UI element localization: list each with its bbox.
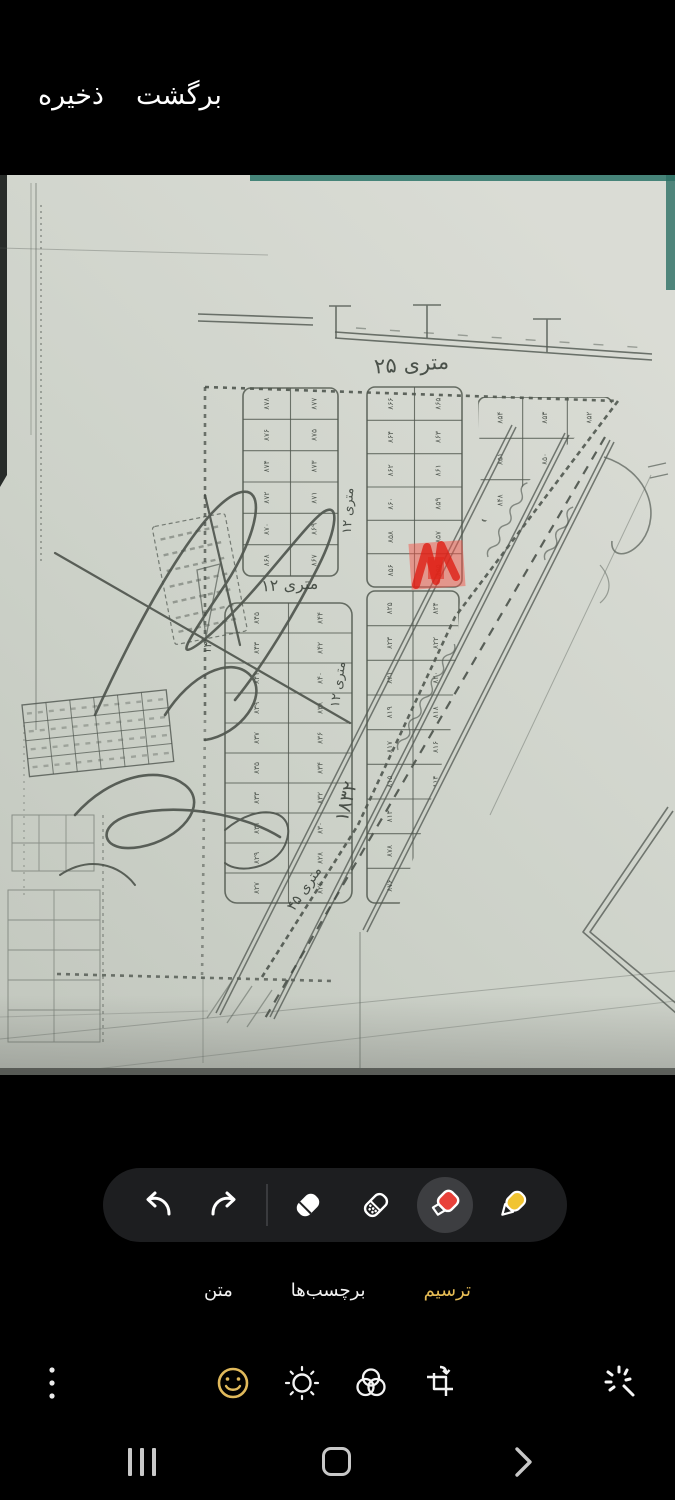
svg-text:۸۲۷: ۸۲۷ [252, 882, 261, 894]
svg-text:۸۳۶: ۸۳۶ [315, 732, 324, 744]
svg-text:۸۱۶: ۸۱۶ [431, 741, 440, 753]
undo-button[interactable] [129, 1177, 185, 1233]
mode-tabs: ترسیم برچسب‌ها متن [0, 1278, 675, 1303]
map-image: ۸۷۸۸۷۷۸۷۶۸۷۵۸۷۴۸۷۳۸۷۲۸۷۱۸۷۰۸۶۹۸۶۸۸۶۷۸۶۶۸… [0, 175, 675, 1075]
svg-text:۸۵۱: ۸۵۱ [495, 453, 504, 465]
svg-text:۸۶۸: ۸۶۸ [262, 554, 271, 566]
filters-button[interactable] [348, 1360, 394, 1406]
svg-text:۸۶۳: ۸۶۳ [433, 431, 442, 443]
svg-text:۸۷۶: ۸۷۶ [262, 429, 271, 441]
svg-text:۸۳۹: ۸۳۹ [252, 702, 261, 714]
svg-text:۸۷۶: ۸۷۶ [385, 880, 394, 892]
drawing-toolbar [103, 1168, 567, 1242]
svg-text:۸۶۷: ۸۶۷ [309, 554, 318, 566]
svg-text:۸۵۹: ۸۵۹ [433, 498, 442, 510]
svg-text:۸۴۸: ۸۴۸ [495, 494, 504, 506]
svg-text:۸۷۱: ۸۷۱ [309, 492, 318, 504]
svg-text:۸۲۱: ۸۲۱ [385, 672, 394, 684]
svg-text:۸۳۳: ۸۳۳ [252, 792, 261, 804]
svg-text:۸۱۹: ۸۱۹ [385, 706, 394, 718]
more-menu-icon [48, 1366, 56, 1400]
filters-icon [353, 1365, 389, 1401]
tab-text[interactable]: متن [200, 1278, 237, 1303]
svg-text:۸۱۸: ۸۱۸ [431, 706, 440, 718]
paper-background [0, 175, 675, 1075]
svg-text:۸۲۰: ۸۲۰ [431, 672, 440, 684]
svg-text:۸۱۳: ۸۱۳ [385, 810, 394, 822]
eraser-button[interactable] [280, 1177, 336, 1233]
svg-text:۸۲۲: ۸۲۲ [431, 637, 440, 649]
svg-text:۸۶۴: ۸۶۴ [386, 431, 395, 443]
back-chevron-icon [514, 1446, 534, 1478]
home-button[interactable] [322, 1447, 351, 1476]
svg-text:۸۶۹: ۸۶۹ [309, 523, 318, 535]
red-highlight-annotation [408, 540, 465, 590]
svg-text:۸۳۷: ۸۳۷ [252, 732, 261, 744]
svg-text:۱۴: ۱۴ [201, 641, 215, 654]
svg-text:۸۶۵: ۸۶۵ [433, 398, 442, 410]
svg-text:۸۱۷: ۸۱۷ [385, 741, 394, 753]
back-button[interactable]: برگشت [136, 80, 222, 111]
svg-text:۸۷۵: ۸۷۵ [309, 429, 318, 441]
svg-text:۸۷۷: ۸۷۷ [309, 398, 318, 410]
svg-text:۸۲۸: ۸۲۸ [315, 852, 324, 864]
redo-icon [208, 1190, 242, 1220]
svg-text:۸۵۶: ۸۵۶ [386, 564, 395, 576]
svg-text:۸۳۴: ۸۳۴ [315, 762, 324, 774]
save-button[interactable]: ذخیره [38, 80, 104, 111]
pattern-eraser-button[interactable] [348, 1177, 404, 1233]
svg-text:۸۷۸: ۸۷۸ [262, 398, 271, 410]
spot-fix-icon [602, 1363, 642, 1403]
emoji-icon [215, 1365, 251, 1401]
recents-icon [128, 1448, 132, 1476]
transform-button[interactable] [417, 1360, 463, 1406]
svg-text:۸۲۳: ۸۲۳ [385, 637, 394, 649]
pen-button[interactable] [485, 1177, 541, 1233]
svg-text:۸۳۵: ۸۳۵ [252, 762, 261, 774]
tab-draw[interactable]: ترسیم [420, 1278, 475, 1303]
svg-text:۸۷۳: ۸۷۳ [309, 460, 318, 472]
back-nav-button[interactable] [514, 1446, 534, 1481]
svg-text:۸۵۸: ۸۵۸ [386, 531, 395, 543]
toolbar-divider [266, 1184, 268, 1226]
svg-text:۸۴۰: ۸۴۰ [315, 672, 324, 684]
crop-rotate-icon [422, 1365, 458, 1401]
more-menu-button[interactable] [29, 1360, 75, 1406]
svg-text:۸۶۱: ۸۶۱ [433, 464, 442, 476]
svg-text:۸۱۵: ۸۱۵ [385, 776, 394, 788]
svg-text:۸۵۳: ۸۵۳ [540, 412, 549, 424]
svg-text:۸۶۰: ۸۶۰ [386, 498, 395, 510]
tab-stickers[interactable]: برچسب‌ها [287, 1278, 370, 1303]
highlighter-icon [425, 1185, 465, 1225]
svg-text:۸۶۲: ۸۶۲ [386, 464, 395, 476]
svg-text:۸۵۴: ۸۵۴ [495, 412, 504, 424]
decorations-button[interactable] [210, 1360, 256, 1406]
top-bar: برگشت ذخیره [0, 0, 675, 175]
svg-text:۸۴۲: ۸۴۲ [315, 642, 324, 654]
sun-icon [284, 1365, 320, 1401]
svg-text:۸۲۹: ۸۲۹ [252, 852, 261, 864]
photo-editor-screen: برگشت ذخیره [0, 0, 675, 1500]
spot-fix-button[interactable] [599, 1360, 645, 1406]
svg-text:۸۴۵: ۸۴۵ [252, 612, 261, 624]
svg-text:۸۳۲: ۸۳۲ [315, 792, 324, 804]
highlighter-button[interactable] [417, 1177, 473, 1233]
svg-text:۸۳۸: ۸۳۸ [315, 702, 324, 714]
svg-text:۸۴۴: ۸۴۴ [315, 612, 324, 624]
svg-text:۸۳۱: ۸۳۱ [252, 822, 261, 834]
recents-button[interactable] [128, 1448, 156, 1476]
eraser-icon [289, 1186, 327, 1224]
svg-text:۸۷۲: ۸۷۲ [262, 492, 271, 504]
svg-text:۸۷۰: ۸۷۰ [262, 523, 271, 535]
redo-button[interactable] [197, 1177, 253, 1233]
svg-text:۸۲۵: ۸۲۵ [385, 602, 394, 614]
photo-canvas[interactable]: ۸۷۸۸۷۷۸۷۶۸۷۵۸۷۴۸۷۳۸۷۲۸۷۱۸۷۰۸۶۹۸۶۸۸۶۷۸۶۶۸… [0, 175, 675, 1075]
pen-icon [493, 1185, 533, 1225]
undo-icon [140, 1190, 174, 1220]
svg-text:۸۴۱: ۸۴۱ [252, 672, 261, 684]
svg-text:۸۷۸: ۸۷۸ [385, 845, 394, 857]
svg-text:۸۳۰: ۸۳۰ [315, 822, 324, 834]
svg-text:۸۴۳: ۸۴۳ [252, 642, 261, 654]
tone-button[interactable] [279, 1360, 325, 1406]
pattern-eraser-icon [357, 1186, 395, 1224]
svg-text:۱۲ متری: ۱۲ متری [340, 487, 357, 534]
svg-text:۸۷۴: ۸۷۴ [262, 460, 271, 472]
svg-text:۸۶۶: ۸۶۶ [386, 398, 395, 410]
svg-text:۸۲۴: ۸۲۴ [431, 602, 440, 614]
